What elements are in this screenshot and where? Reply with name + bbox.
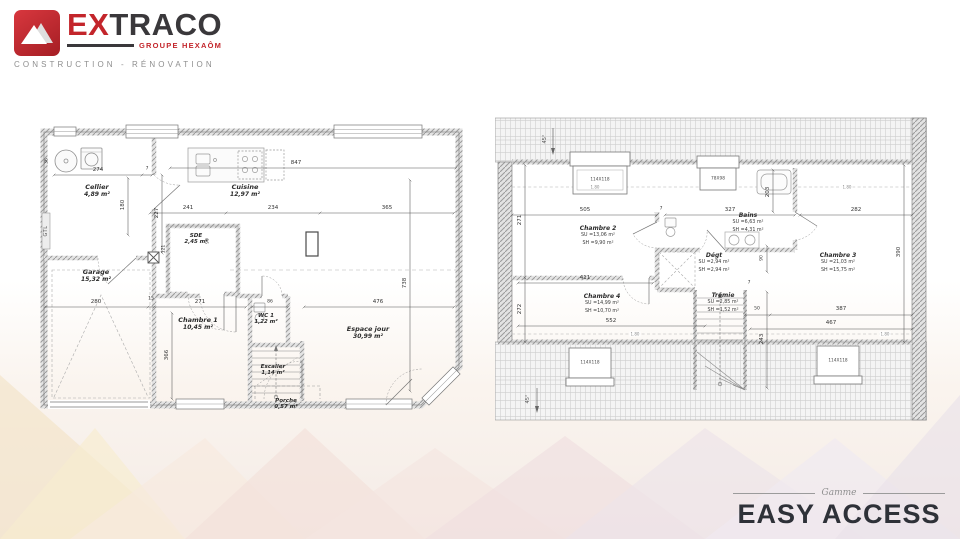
brand-wordmark: EXTRACO xyxy=(67,10,222,40)
room-label-degt: Dégt SU =2,94 m² SH =2,94 m² xyxy=(699,252,730,274)
structural-post xyxy=(306,232,318,256)
window-size-label: 114X118 xyxy=(580,361,599,366)
room-name: Chambre 1 xyxy=(178,316,218,324)
divider xyxy=(733,493,815,494)
room-su: SU =21,03 m² xyxy=(820,259,857,267)
mountains-icon xyxy=(14,10,60,56)
room-area: 10,45 m² xyxy=(178,324,218,331)
dim-738: 738 xyxy=(402,278,408,289)
range-branding: Gamme EASY ACCESS xyxy=(733,488,945,530)
room-label-cellier: Cellier 4,89 m² xyxy=(84,183,110,198)
dim-7: 7 xyxy=(146,167,149,172)
room-name: Chambre 2 xyxy=(580,225,617,232)
room-sh: SH =2,94 m² xyxy=(699,267,730,275)
dim-271: 271 xyxy=(517,215,523,226)
height-180-marker: 1.80 xyxy=(842,185,853,190)
room-su: SU =6,63 m² xyxy=(733,219,764,227)
dim-271: 271 xyxy=(195,299,206,305)
ground-floor-plan: Cellier 4,89 m² Cuisine 12,97 m² SDE 2,4… xyxy=(40,123,468,421)
garage-door xyxy=(48,270,150,409)
room-label-garage: Garage 15,32 m² xyxy=(81,268,111,283)
room-area: 0,57 m² xyxy=(274,404,297,410)
room-sh: SH =1,52 m² xyxy=(708,307,739,315)
room-area: 30,99 m² xyxy=(347,333,389,340)
room-area: 2,45 m² xyxy=(184,239,207,245)
room-area: 15,32 m² xyxy=(81,276,111,283)
room-su: SU =2,85 m² xyxy=(708,299,739,307)
room-label-sde: SDE 2,45 m² xyxy=(184,233,207,245)
dim-505: 505 xyxy=(580,207,591,213)
range-label: Gamme xyxy=(822,488,857,498)
roof-angle-label: 45° xyxy=(525,395,531,404)
floor-plan-sheet: EXTRACO GROUPE HEXAÔM CONSTRUCTION - RÉN… xyxy=(0,0,960,539)
dim-90: 90 xyxy=(760,255,765,261)
dim-274: 274 xyxy=(93,167,104,173)
brand-suffix: TRACO xyxy=(109,7,222,42)
window-size-label: 78X98 xyxy=(711,177,725,182)
dim-7: 7 xyxy=(748,281,751,286)
dim-467: 467 xyxy=(826,320,837,326)
height-180-marker: 1.80 xyxy=(630,332,641,337)
dim-180: 180 xyxy=(120,200,126,211)
room-su: SU =2,94 m² xyxy=(699,259,730,267)
dim-387: 387 xyxy=(836,306,847,312)
room-label-chambre3: Chambre 3 SU =21,03 m² SH =15,75 m² xyxy=(820,252,857,274)
window-size-label: 114X118 xyxy=(590,178,609,183)
dim-241: 241 xyxy=(183,205,194,211)
extraco-logo-icon xyxy=(14,10,60,56)
roof-angle-label: 45° xyxy=(542,135,548,144)
dim-390: 390 xyxy=(896,247,902,258)
room-name: Chambre 4 xyxy=(584,293,621,300)
dim-411: 411 xyxy=(580,275,591,281)
dim-282: 282 xyxy=(851,207,862,213)
dim-86: 86 xyxy=(267,300,273,305)
dim-36: 36 xyxy=(45,158,50,164)
room-su: SU =14,99 m² xyxy=(584,300,621,308)
dim-234: 234 xyxy=(268,205,279,211)
room-area: 1,14 m² xyxy=(261,370,286,376)
room-name: Trémie xyxy=(708,292,739,299)
room-label-cuisine: Cuisine 12,97 m² xyxy=(230,183,260,198)
dim-366: 366 xyxy=(164,350,170,361)
room-sh: SH =9,90 m² xyxy=(580,240,617,248)
first-floor-plan: Chambre 2 SU =13,06 m² SH =9,90 m² Bains… xyxy=(495,112,927,424)
logo-tagline: CONSTRUCTION - RÉNOVATION xyxy=(14,60,244,69)
room-label-porche: Porche 0,57 m² xyxy=(274,398,297,410)
room-label-chambre2: Chambre 2 SU =13,06 m² SH =9,90 m² xyxy=(580,225,617,247)
extraco-logo: EXTRACO GROUPE HEXAÔM CONSTRUCTION - RÉN… xyxy=(14,10,244,69)
dim-90: 90 xyxy=(206,238,211,244)
room-label-tremie: Trémie SU =2,85 m² SH =1,52 m² xyxy=(708,292,739,314)
room-label-chambre1: Chambre 1 10,45 m² xyxy=(178,316,218,331)
room-name: Chambre 3 xyxy=(820,252,857,259)
room-name: Dégt xyxy=(699,252,730,259)
room-sh: SH =4,31 m² xyxy=(733,227,764,235)
divider xyxy=(67,44,134,47)
dim-15: 15 xyxy=(148,297,154,302)
room-label-wc1: WC 1 1,22 m² xyxy=(254,313,277,325)
room-label-escalier: Escalier 1,14 m² xyxy=(261,364,286,376)
room-label-espace-jour: Espace jour 30,99 m² xyxy=(347,325,389,340)
dim-227: 227 xyxy=(154,208,160,219)
dim-280: 280 xyxy=(91,299,102,305)
gtl-label: GTL xyxy=(43,225,49,236)
dim-203: 203 xyxy=(765,187,771,198)
room-sh: SH =10,70 m² xyxy=(584,308,621,316)
window-size-label: 114X118 xyxy=(828,359,847,364)
divider xyxy=(863,493,945,494)
height-180-marker: 1.80 xyxy=(880,332,891,337)
dim-847: 847 xyxy=(291,160,302,166)
post-x-marker xyxy=(148,252,159,263)
room-name: Bains xyxy=(733,212,764,219)
dim-243: 243 xyxy=(759,334,765,345)
range-name: EASY ACCESS xyxy=(733,499,945,530)
dim-365: 365 xyxy=(382,205,393,211)
height-180-marker: 1.80 xyxy=(590,185,601,190)
dim-552: 552 xyxy=(606,318,617,324)
dim-327: 327 xyxy=(725,207,736,213)
room-area: 4,89 m² xyxy=(84,191,110,198)
dim-50: 50 xyxy=(754,307,760,312)
room-label-bains: Bains SU =6,63 m² SH =4,31 m² xyxy=(733,212,764,234)
room-name: Garage xyxy=(81,268,111,276)
dim-121: 121 xyxy=(162,245,167,254)
room-area: 12,97 m² xyxy=(230,191,260,198)
storage-dashed-box xyxy=(659,252,695,288)
room-sh: SH =15,75 m² xyxy=(820,267,857,275)
dim-272: 272 xyxy=(517,304,523,315)
dim-476: 476 xyxy=(373,299,384,305)
brand-prefix: EX xyxy=(67,7,109,42)
room-name: Cellier xyxy=(84,183,110,191)
room-area: 1,22 m² xyxy=(254,319,277,325)
group-name: GROUPE HEXAÔM xyxy=(139,41,222,50)
room-name: Cuisine xyxy=(230,183,260,191)
room-su: SU =13,06 m² xyxy=(580,232,617,240)
dim-7: 7 xyxy=(660,207,663,212)
kitchen-fixtures xyxy=(188,148,284,182)
room-label-chambre4: Chambre 4 SU =14,99 m² SH =10,70 m² xyxy=(584,293,621,315)
room-name: Espace jour xyxy=(347,325,389,333)
